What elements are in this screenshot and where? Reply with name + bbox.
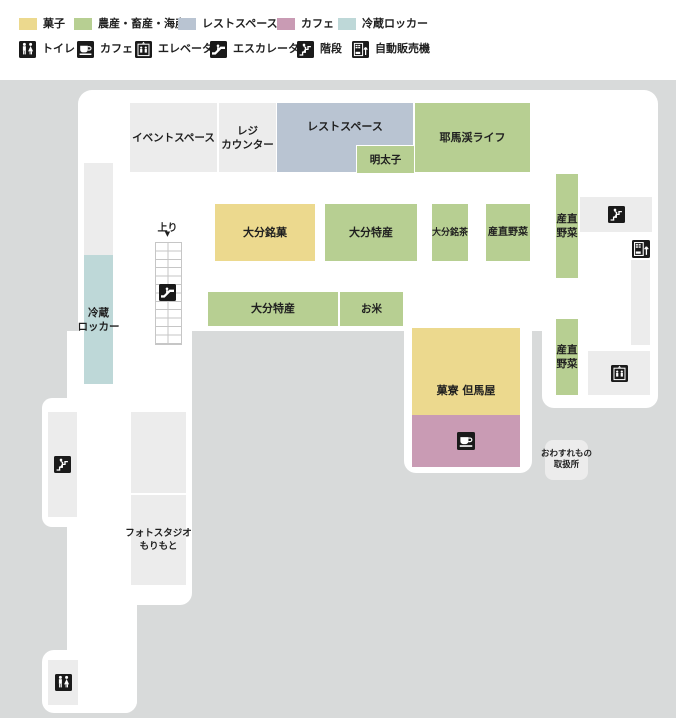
booth-label: 大分銘菓 — [243, 226, 287, 240]
legend-category-cafe: カフェ — [277, 16, 334, 32]
toilet-icon — [55, 674, 72, 691]
vending-icon — [632, 240, 650, 258]
booth-oita-tokusan-1: 大分特産 — [325, 204, 417, 261]
stairs-icon — [297, 41, 314, 58]
stairs-area-left — [48, 412, 77, 517]
legend-label: トイレ — [42, 41, 75, 57]
gray-area-left-top — [84, 163, 113, 255]
booth-label: 大分特産 — [349, 226, 393, 240]
gray-area-narrow-right — [631, 260, 650, 345]
legend-category-locker: 冷蔵ロッカー — [338, 16, 428, 32]
booth-label: フォトスタジオ — [125, 527, 192, 541]
legend-label: エスカレータ — [233, 41, 299, 57]
lost-and-found-box: おわすれもの 取扱所 — [545, 440, 588, 480]
legend-label: カフェ — [301, 16, 334, 32]
legend-label: 自動販売機 — [375, 41, 430, 57]
legend-label: カフェ — [100, 41, 133, 57]
booth-label: 大分特産 — [251, 302, 295, 316]
escalator-icon — [210, 41, 227, 58]
booth-reizo-locker: 冷蔵 ロッカー — [84, 255, 113, 384]
booth-label: レストスペース — [307, 120, 383, 134]
legend-facility-vending: 自動販売機 — [352, 41, 430, 57]
booth-label: 菓寮 但馬屋 — [437, 384, 496, 398]
legend-category-produce: 農産・畜産・海産 — [74, 16, 186, 32]
vending-icon — [352, 41, 369, 58]
elevator-icon — [135, 41, 152, 58]
legend-label: 菓子 — [43, 16, 65, 32]
booth-label: お米 — [361, 302, 382, 316]
booth-label: カウンター — [221, 138, 274, 152]
booth-cafe-space — [412, 415, 520, 467]
stairs-icon — [608, 206, 625, 223]
escalator-up-arrow: ▼ — [145, 230, 190, 238]
elevator-area-right — [588, 351, 650, 395]
stairs-icon — [54, 456, 71, 473]
legend-label: 階段 — [320, 41, 342, 57]
escalator-icon — [159, 284, 176, 301]
booth-label: 野菜 — [557, 357, 578, 371]
legend-category-sweets: 菓子 — [19, 16, 65, 32]
booth-label: 明太子 — [370, 153, 402, 167]
toilet-icon — [19, 41, 36, 58]
locker-swatch — [338, 18, 356, 30]
photo-studio-area-top — [131, 412, 186, 493]
rest-swatch — [178, 18, 196, 30]
booth-label: 野菜 — [557, 226, 578, 240]
booth-oita-meicha: 大分銘茶 — [432, 204, 468, 261]
booth-label: 耶馬渓ライフ — [440, 131, 506, 145]
cafe-swatch — [277, 18, 295, 30]
legend-label: 冷蔵ロッカー — [362, 16, 428, 32]
booth-oita-meika: 大分銘菓 — [215, 204, 315, 261]
lost-and-found-label: おわすれもの — [541, 449, 592, 460]
legend-category-rest: レストスペース — [178, 16, 278, 32]
booth-label: 産直 — [557, 212, 578, 226]
booth-sanchoku-yasai-mid: 産直野菜 — [486, 204, 530, 261]
produce-swatch — [74, 18, 92, 30]
legend-label: 農産・畜産・海産 — [98, 16, 186, 32]
booth-register-counter: レジ カウンター — [219, 103, 276, 172]
lost-and-found-label: 取扱所 — [554, 460, 580, 471]
legend-label: レストスペース — [202, 16, 278, 32]
legend-facility-escalator: エスカレータ — [210, 41, 299, 57]
stairs-area-top-right — [580, 197, 652, 232]
booth-sanchoku-yasai-right-2: 産直 野菜 — [556, 319, 578, 395]
legend-facility-elevator: エレベータ — [135, 41, 213, 57]
booth-label: ロッカー — [78, 320, 120, 334]
booth-karyo-tajimaya: 菓寮 但馬屋 — [412, 328, 520, 415]
cafe-icon — [77, 41, 94, 58]
toilet-area — [48, 660, 78, 705]
booth-sanchoku-yasai-right-1: 産直 野菜 — [556, 174, 578, 278]
floor-map-page: 菓子 農産・畜産・海産 レストスペース カフェ 冷蔵ロッカー トイレ カフェ — [0, 0, 678, 723]
legend-label: エレベータ — [158, 41, 213, 57]
booth-label: イベントスペース — [132, 131, 215, 145]
booth-mentaiko: 明太子 — [356, 145, 414, 173]
booth-label: 冷蔵 — [88, 306, 109, 320]
booth-label: 産直 — [557, 343, 578, 357]
booth-event-space: イベントスペース — [130, 103, 217, 172]
sweets-swatch — [19, 18, 37, 30]
cafe-icon — [457, 432, 475, 450]
booth-photo-studio: フォトスタジオ もりもと — [131, 495, 186, 585]
legend-facility-cafe: カフェ — [77, 41, 133, 57]
booth-label: レジ — [237, 124, 258, 138]
elevator-icon — [611, 365, 628, 382]
legend-facility-toilet: トイレ — [19, 41, 75, 57]
booth-okome: お米 — [340, 292, 403, 326]
booth-oita-tokusan-2: 大分特産 — [208, 292, 338, 326]
booth-label: 大分銘茶 — [432, 226, 468, 240]
booth-label: 産直野菜 — [488, 226, 528, 240]
legend-facility-stairs: 階段 — [297, 41, 342, 57]
booth-label: もりもと — [140, 540, 178, 554]
booth-yabakei-life: 耶馬渓ライフ — [415, 103, 530, 172]
